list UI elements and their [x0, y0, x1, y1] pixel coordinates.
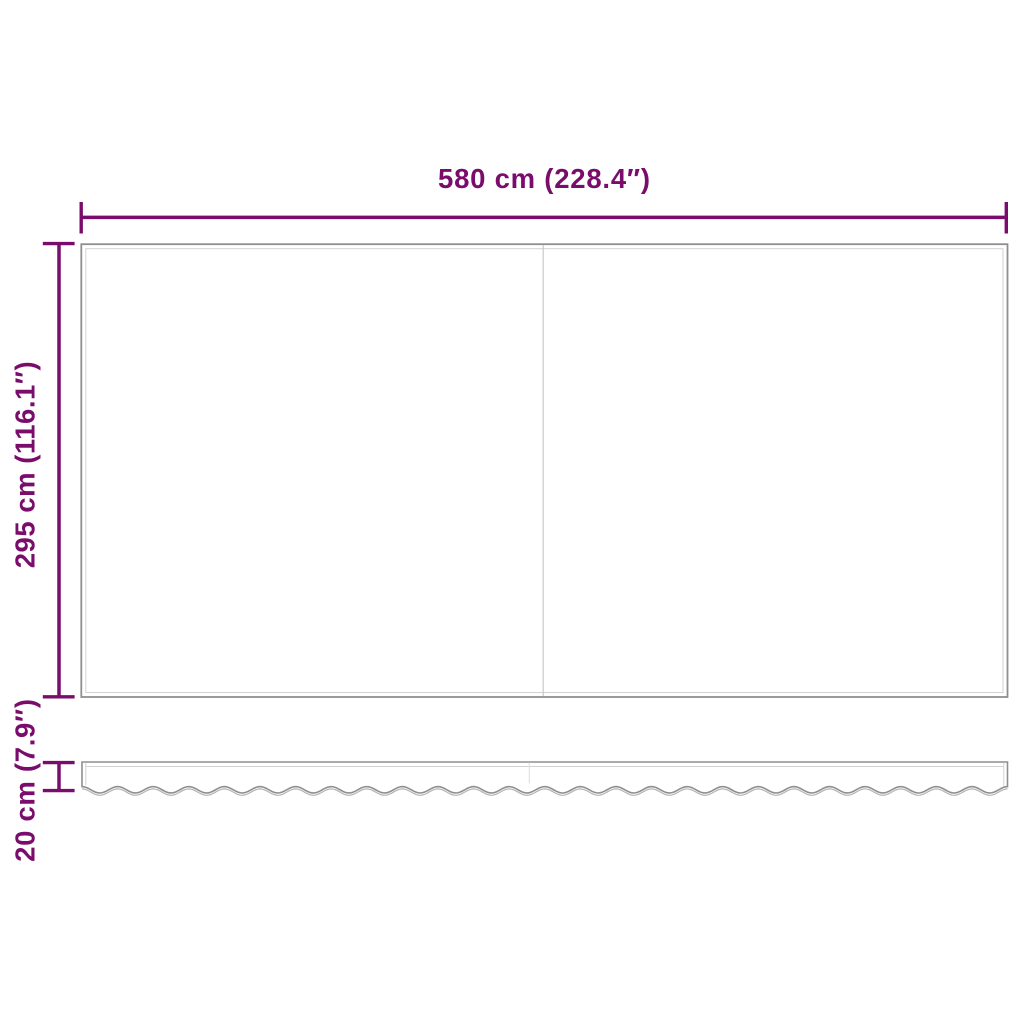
svg-text:295 cm (116.1″): 295 cm (116.1″) — [10, 361, 41, 568]
svg-text:20 cm (7.9″): 20 cm (7.9″) — [10, 699, 41, 862]
svg-text:580 cm (228.4″): 580 cm (228.4″) — [438, 163, 650, 194]
